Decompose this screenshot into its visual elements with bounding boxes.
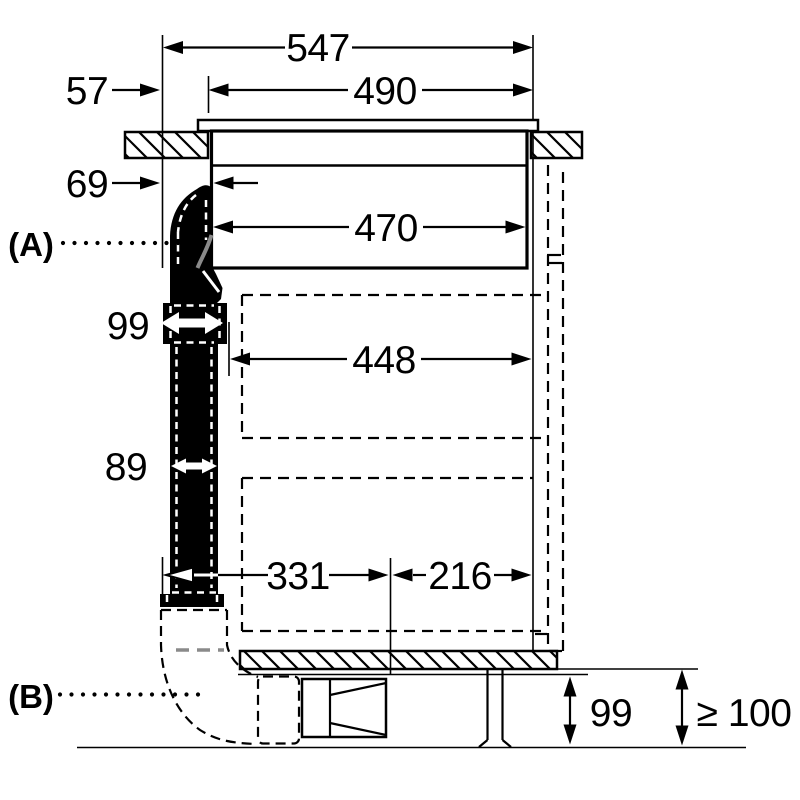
hob-top-flange — [198, 120, 538, 131]
rear-duct-dashed-lines — [535, 165, 563, 652]
dim-min-100: ≥ 100 — [676, 670, 792, 746]
callout-a-label: (A) — [8, 226, 54, 263]
dim-448: 448 — [230, 339, 532, 382]
callout-b-label: (B) — [8, 678, 54, 715]
worktop-left — [102, 131, 220, 159]
dim-448-label: 448 — [352, 339, 416, 382]
dim-547-label: 547 — [286, 27, 350, 70]
dim-490: 490 — [209, 70, 534, 113]
callout-b: (B) — [8, 678, 207, 715]
cabinet-leg — [479, 669, 511, 747]
dim-min-100-label: ≥ 100 — [697, 692, 792, 735]
dim-69-label: 69 — [66, 163, 108, 206]
diagram-canvas: 547 57 490 69 470 448 — [0, 0, 800, 800]
dim-89-label: 89 — [105, 446, 147, 489]
dim-57: 57 — [66, 70, 160, 113]
dim-57-label: 57 — [66, 70, 108, 113]
dim-547: 547 — [163, 27, 533, 70]
dim-99-plinth: 99 — [564, 677, 633, 745]
installation-diagram: 547 57 490 69 470 448 — [0, 0, 800, 800]
dim-99-duct-label: 99 — [107, 305, 149, 348]
dim-470-label: 470 — [354, 207, 418, 250]
plinth-flat-duct — [302, 679, 386, 737]
dim-99-plinth-label: 99 — [590, 692, 632, 735]
dim-216-label: 216 — [428, 555, 492, 598]
dim-216: 216 — [393, 555, 532, 598]
dim-331-label: 331 — [266, 555, 330, 598]
cabinet-bottom-panel — [225, 650, 569, 670]
duct-connector-dashed — [258, 677, 299, 744]
dim-490-label: 490 — [353, 70, 417, 113]
